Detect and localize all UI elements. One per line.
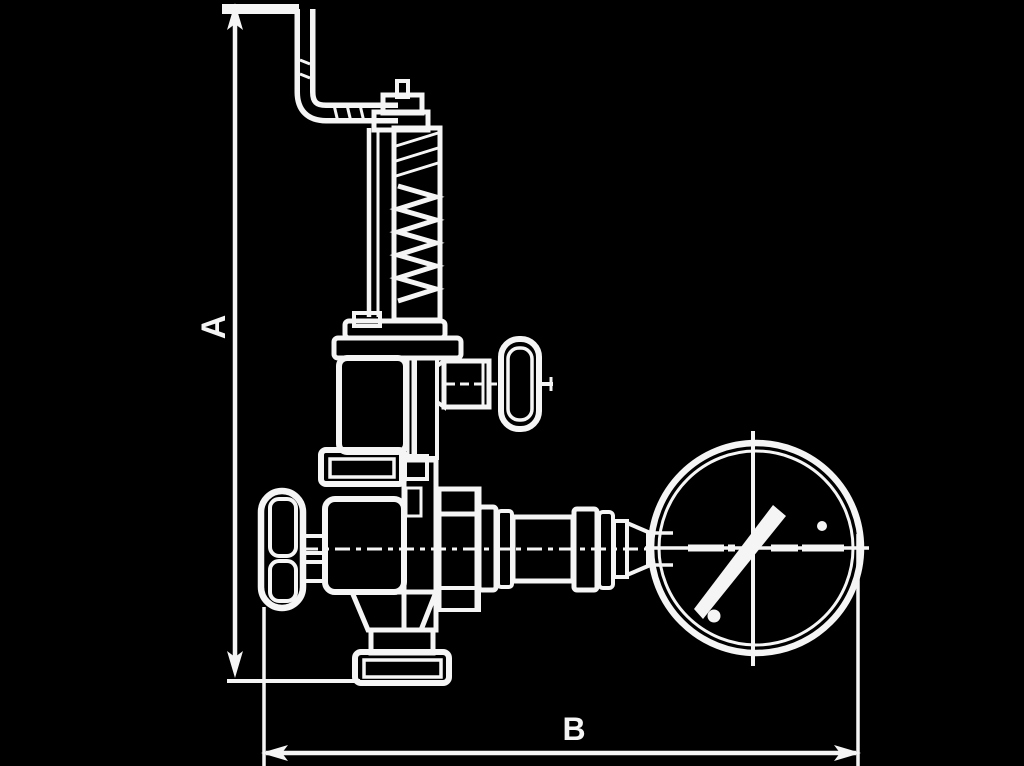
side-outlet bbox=[437, 339, 553, 429]
spring-column bbox=[354, 128, 440, 326]
lower-flange-outer bbox=[321, 450, 404, 484]
pressure-gauge bbox=[645, 431, 869, 666]
gauge-dot-right bbox=[817, 521, 827, 531]
spring-coils bbox=[398, 186, 436, 301]
tee-bottom-block bbox=[437, 588, 479, 610]
dim-b-label: B bbox=[562, 711, 585, 747]
outlet-taper bbox=[352, 592, 436, 630]
bonnet-body bbox=[339, 358, 437, 458]
flange-slab-upper bbox=[345, 321, 445, 338]
lower-flange-inner bbox=[330, 459, 394, 477]
riser-column bbox=[415, 358, 437, 458]
technical-drawing-canvas: A bbox=[0, 0, 1024, 766]
adjuster-hatching bbox=[396, 133, 438, 176]
lifting-lever bbox=[222, 9, 398, 122]
dim-a-label: A bbox=[195, 315, 233, 340]
gauge-needle bbox=[694, 505, 786, 619]
left-wheel-inner-bottom bbox=[270, 561, 296, 601]
bottom-flange-inner bbox=[364, 660, 441, 677]
bonnet-shell bbox=[339, 358, 406, 452]
body-shell bbox=[325, 499, 404, 592]
tee-top-block bbox=[437, 489, 479, 514]
lower-flange bbox=[321, 450, 427, 484]
valve-dimension-drawing: A bbox=[0, 0, 1024, 766]
small-handwheel-inner bbox=[508, 348, 532, 420]
left-wheel-inner-top bbox=[270, 499, 296, 556]
riser-insert bbox=[406, 488, 421, 516]
gauge-dot-lower bbox=[708, 610, 721, 623]
